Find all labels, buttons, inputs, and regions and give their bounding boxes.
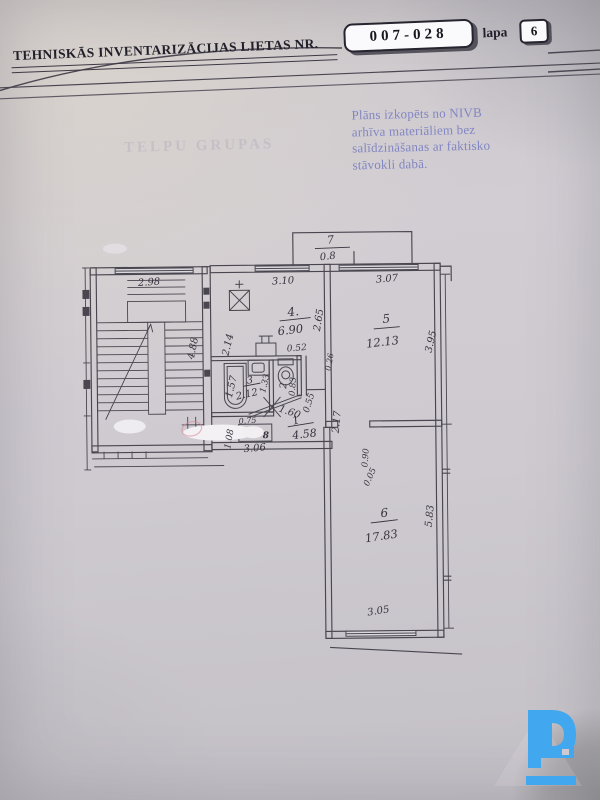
wall-marker-squares [82,288,211,440]
stamp-line: salīdzināšanas ar faktisko [352,138,490,157]
dim-niche: 0.26 [324,352,336,371]
dim-gap: 0.05 [362,466,379,487]
dim-hall-left: 1.08 [223,428,236,450]
dim-room5-width: 3.07 [376,273,400,286]
room-kitchen-area: 6.90 [277,321,304,338]
dim-kitchen-width: 3.10 [272,275,296,287]
room-6-number: 6 [380,505,389,520]
room-5-area: 12.13 [365,333,399,351]
dim-sink: 0.52 [286,343,307,355]
dim-wc-side: 0.55 [302,392,318,414]
stamp-line: stāvokli dabā. [352,154,490,173]
room-balcony-number: 7 [326,233,334,247]
room-bathroom-area: 2.12 [234,387,259,403]
plan-walls [90,231,462,658]
scanned-document-photo: { "header": { "title": "TEHNISKĀS INVENT… [0,0,600,800]
dim-door6: 0.90 [360,447,371,467]
dimension-lines [82,264,454,632]
room-hall-area: 4.58 [291,426,318,442]
dim-stairs-height: 4.88 [186,336,201,361]
kitchen-sink-icon [256,336,276,356]
dim-room6-width: 3.05 [367,604,391,618]
cupboard-glyph: 8 [263,431,270,441]
dim-hall-right: 2.17 [331,410,344,435]
dim-room6-height: 5.83 [424,504,437,527]
room-bathroom-number: 3 [246,375,254,387]
floor-plan: 2.98 4.88 7 0.8 3.10 4. 6.90 2.14 2.65 0… [82,224,465,673]
room-wc-area: 0.83 [288,377,299,397]
dim-room5-height: 3.95 [424,330,440,354]
dim-bath-height: 1.33 [258,373,272,394]
room-kitchen-number: 4. [286,304,300,319]
washbasin-icon [248,360,269,375]
plan-windows [115,264,422,638]
dim-stairs-width: 2.98 [137,277,161,289]
watermark-corner [480,675,600,800]
dim-hall-width: 3.06 [243,442,267,455]
dim-kitchen-left: 2.14 [220,333,236,358]
d-logo-icon [514,710,586,790]
dim-cupboard: 0.75 [238,416,256,426]
d-logo-shapes [526,710,576,785]
archive-stamp: Plāns izkopēts no NIVB arhīva materiālie… [351,105,490,174]
page-word-label: lapa [482,24,507,41]
ghost-bleedthrough-text: TELPU GRUPAS [124,136,275,157]
case-number-box: 007-028 [343,19,474,53]
room-balcony-area: 0.8 [319,251,336,263]
page-number-box: 6 [519,19,549,44]
room-6-area: 17.83 [364,527,399,546]
room-5-number: 5 [382,311,391,326]
stove-icon [229,280,249,310]
